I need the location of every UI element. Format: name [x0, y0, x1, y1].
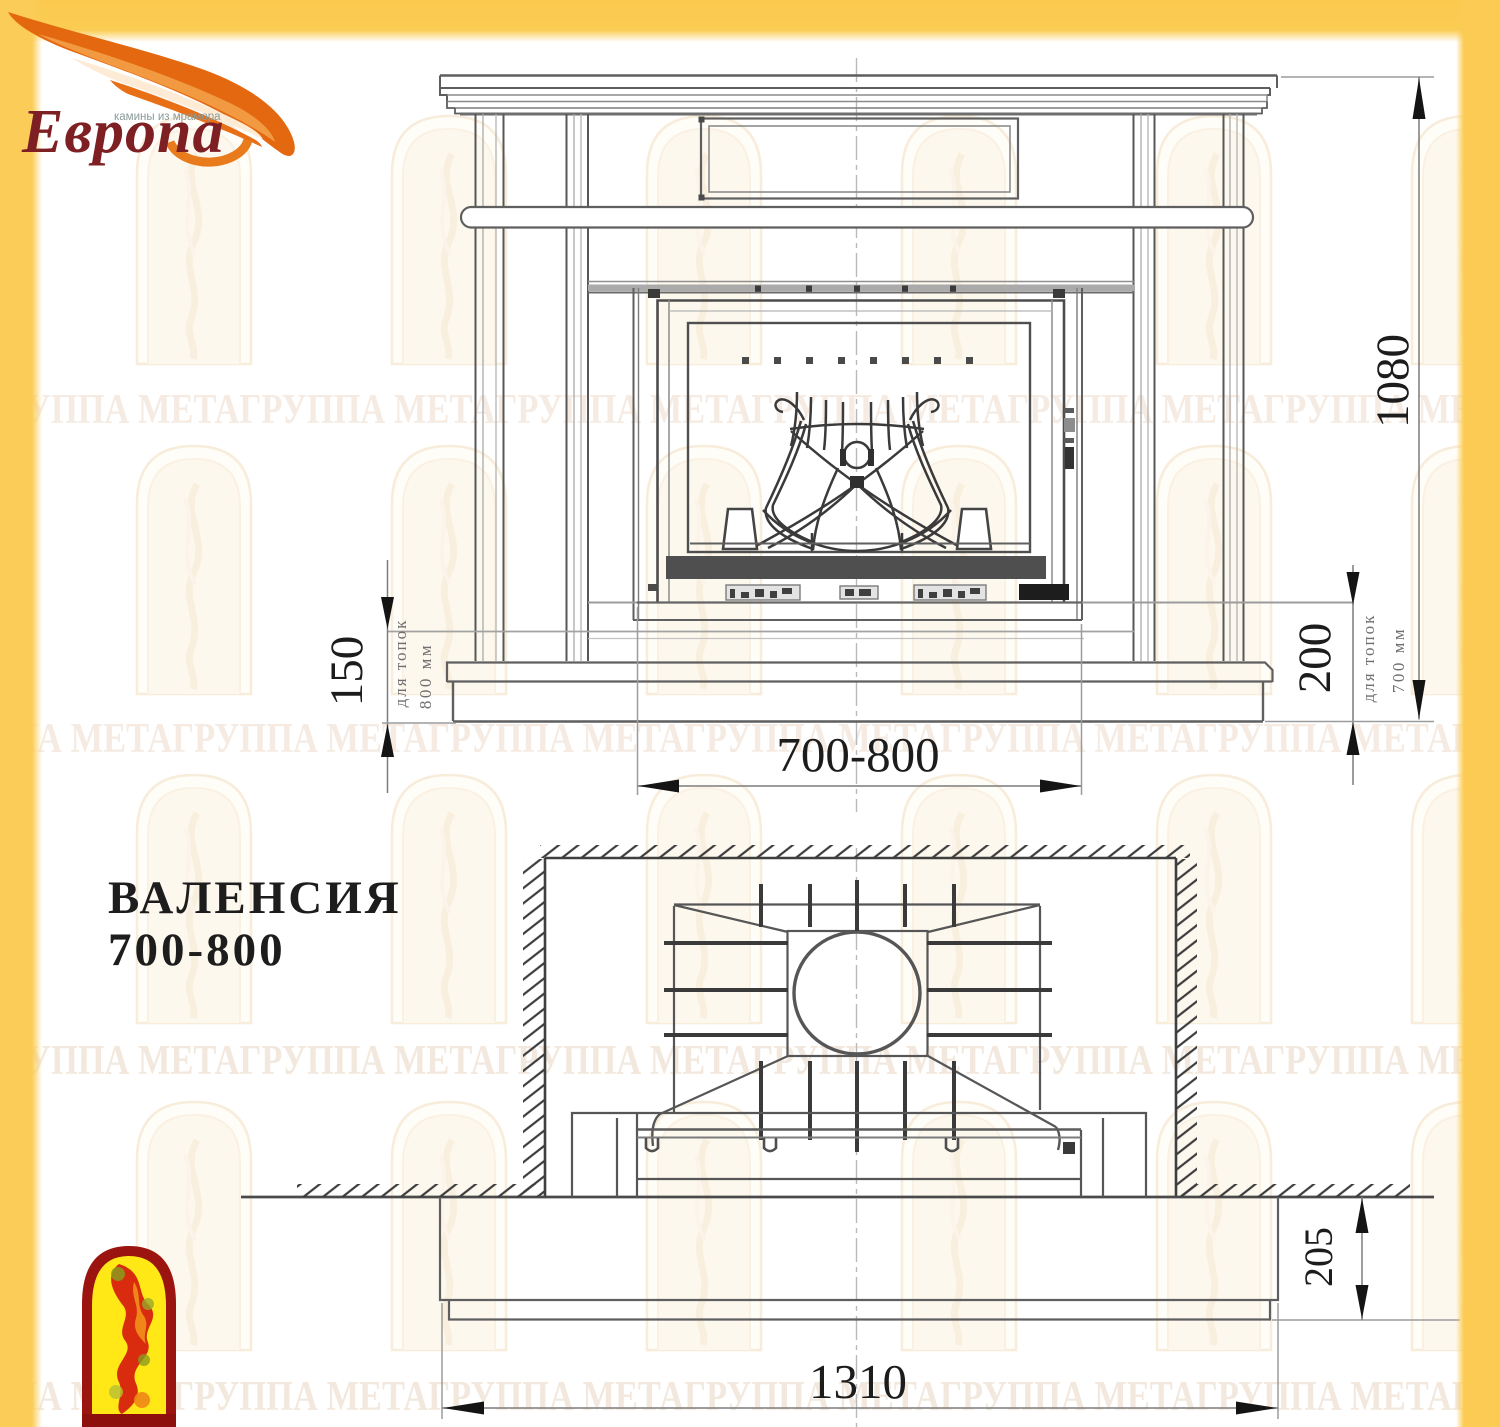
svg-text:800 мм: 800 мм: [416, 643, 435, 709]
svg-text:1310: 1310: [809, 1354, 907, 1409]
svg-text:205: 205: [1296, 1227, 1341, 1287]
svg-text:200: 200: [1289, 623, 1341, 694]
svg-text:700 мм: 700 мм: [1389, 627, 1408, 693]
svg-text:Европа: Европа: [21, 98, 225, 166]
svg-text:1080: 1080: [1367, 334, 1419, 428]
svg-text:150: 150: [321, 636, 373, 707]
svg-text:для топок: для топок: [391, 619, 410, 708]
svg-text:для топок: для топок: [1359, 614, 1378, 703]
svg-text:700-800: 700-800: [776, 727, 939, 782]
